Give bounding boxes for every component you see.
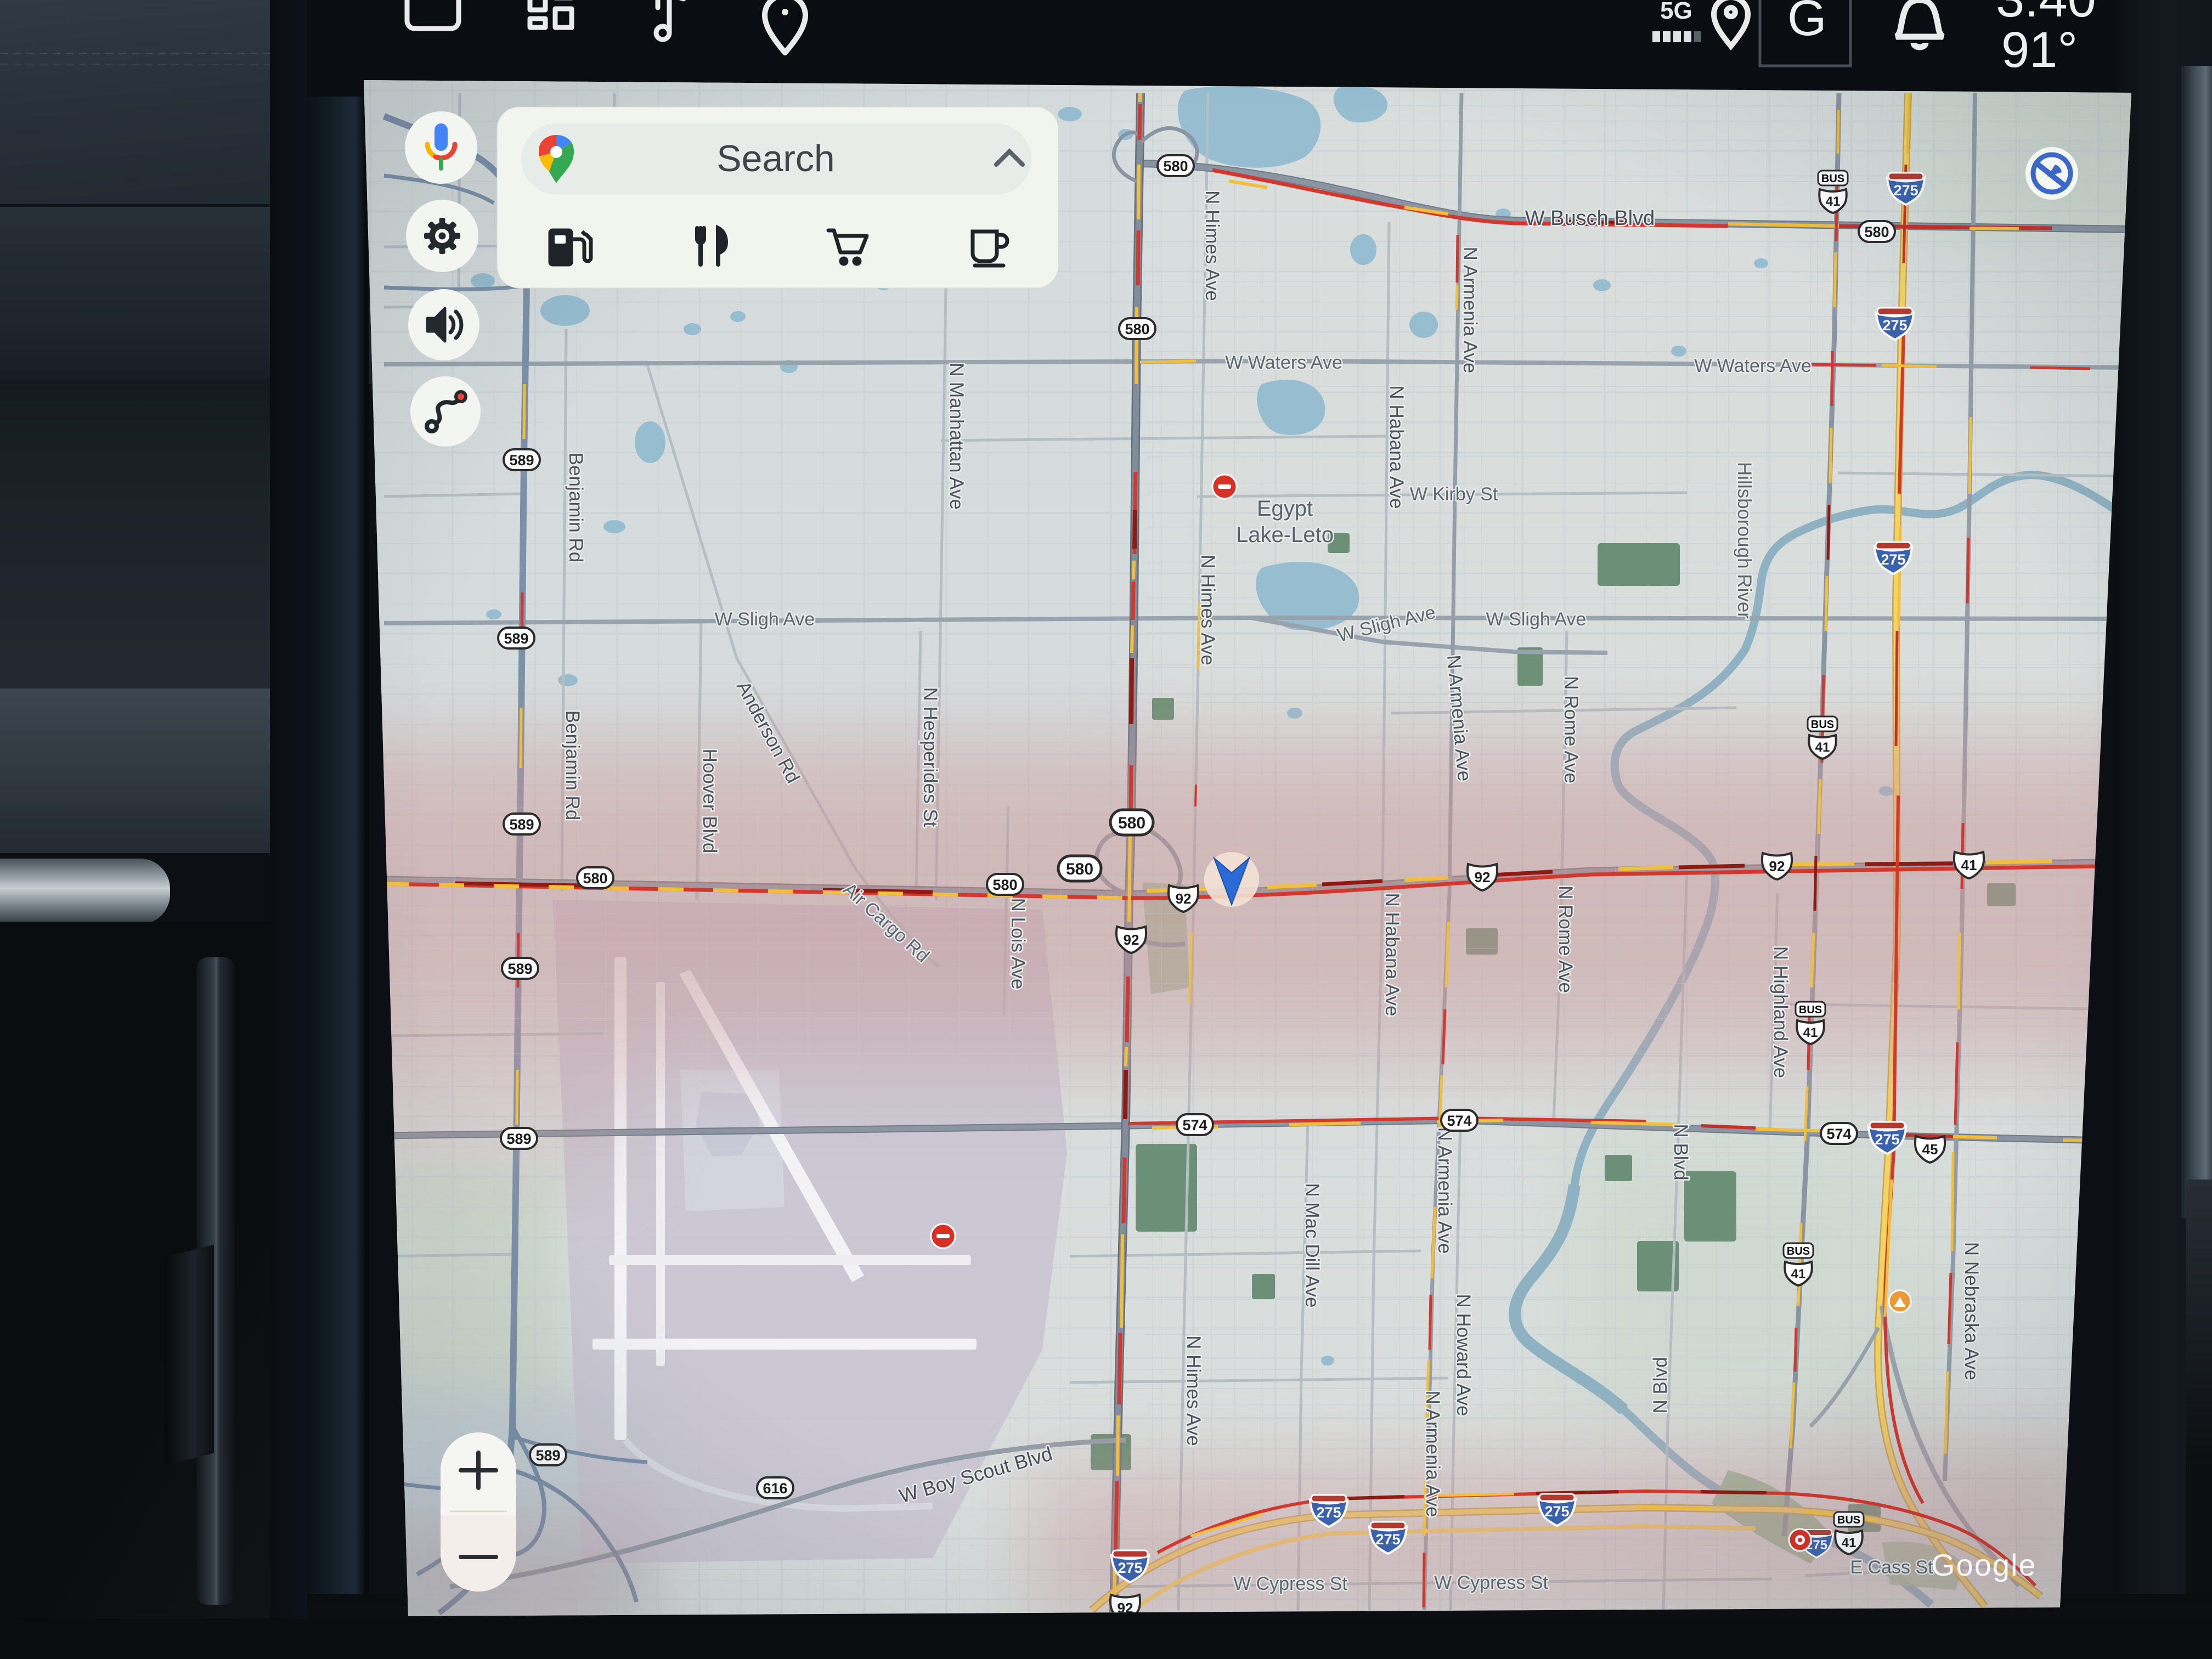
svg-text:Search: Search bbox=[716, 138, 834, 179]
svg-text:Google: Google bbox=[1931, 1548, 2037, 1582]
